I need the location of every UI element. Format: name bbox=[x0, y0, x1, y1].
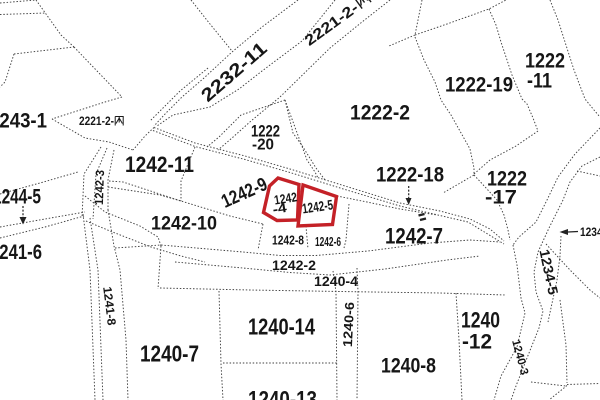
svg-text:-20: -20 bbox=[252, 137, 274, 154]
svg-text:2221-2-: 2221-2- bbox=[79, 114, 114, 128]
svg-text:1240-7: 1240-7 bbox=[140, 341, 199, 367]
svg-text:1242-3: 1242-3 bbox=[92, 169, 107, 205]
svg-text:1240-4: 1240-4 bbox=[314, 273, 358, 289]
svg-text:1242-8: 1242-8 bbox=[272, 233, 304, 248]
svg-text:1222-2: 1222-2 bbox=[350, 102, 410, 125]
svg-text:1243-1: 1243-1 bbox=[0, 110, 47, 133]
svg-text:1234-: 1234- bbox=[580, 225, 600, 239]
svg-text:1242-10: 1242-10 bbox=[151, 213, 217, 235]
svg-text:-11: -11 bbox=[527, 70, 552, 93]
svg-text:-12: -12 bbox=[462, 331, 492, 354]
svg-text:1244-5: 1244-5 bbox=[0, 186, 41, 209]
svg-text:1241-6: 1241-6 bbox=[0, 240, 42, 264]
svg-text:1240: 1240 bbox=[461, 308, 500, 333]
svg-text:1242-7: 1242-7 bbox=[385, 224, 443, 249]
svg-text:1222-19: 1222-19 bbox=[445, 74, 513, 97]
svg-text:1240-6: 1240-6 bbox=[340, 302, 357, 348]
svg-text:1242-6: 1242-6 bbox=[315, 235, 341, 249]
svg-text:1240-8: 1240-8 bbox=[381, 355, 436, 378]
svg-text:-17: -17 bbox=[485, 188, 517, 209]
svg-text:1242-2: 1242-2 bbox=[272, 257, 316, 273]
svg-text:1222-18: 1222-18 bbox=[376, 164, 444, 187]
svg-text:1240-14: 1240-14 bbox=[248, 314, 315, 340]
svg-text:1240-13: 1240-13 bbox=[248, 386, 317, 400]
svg-text:1242-11: 1242-11 bbox=[125, 152, 194, 177]
